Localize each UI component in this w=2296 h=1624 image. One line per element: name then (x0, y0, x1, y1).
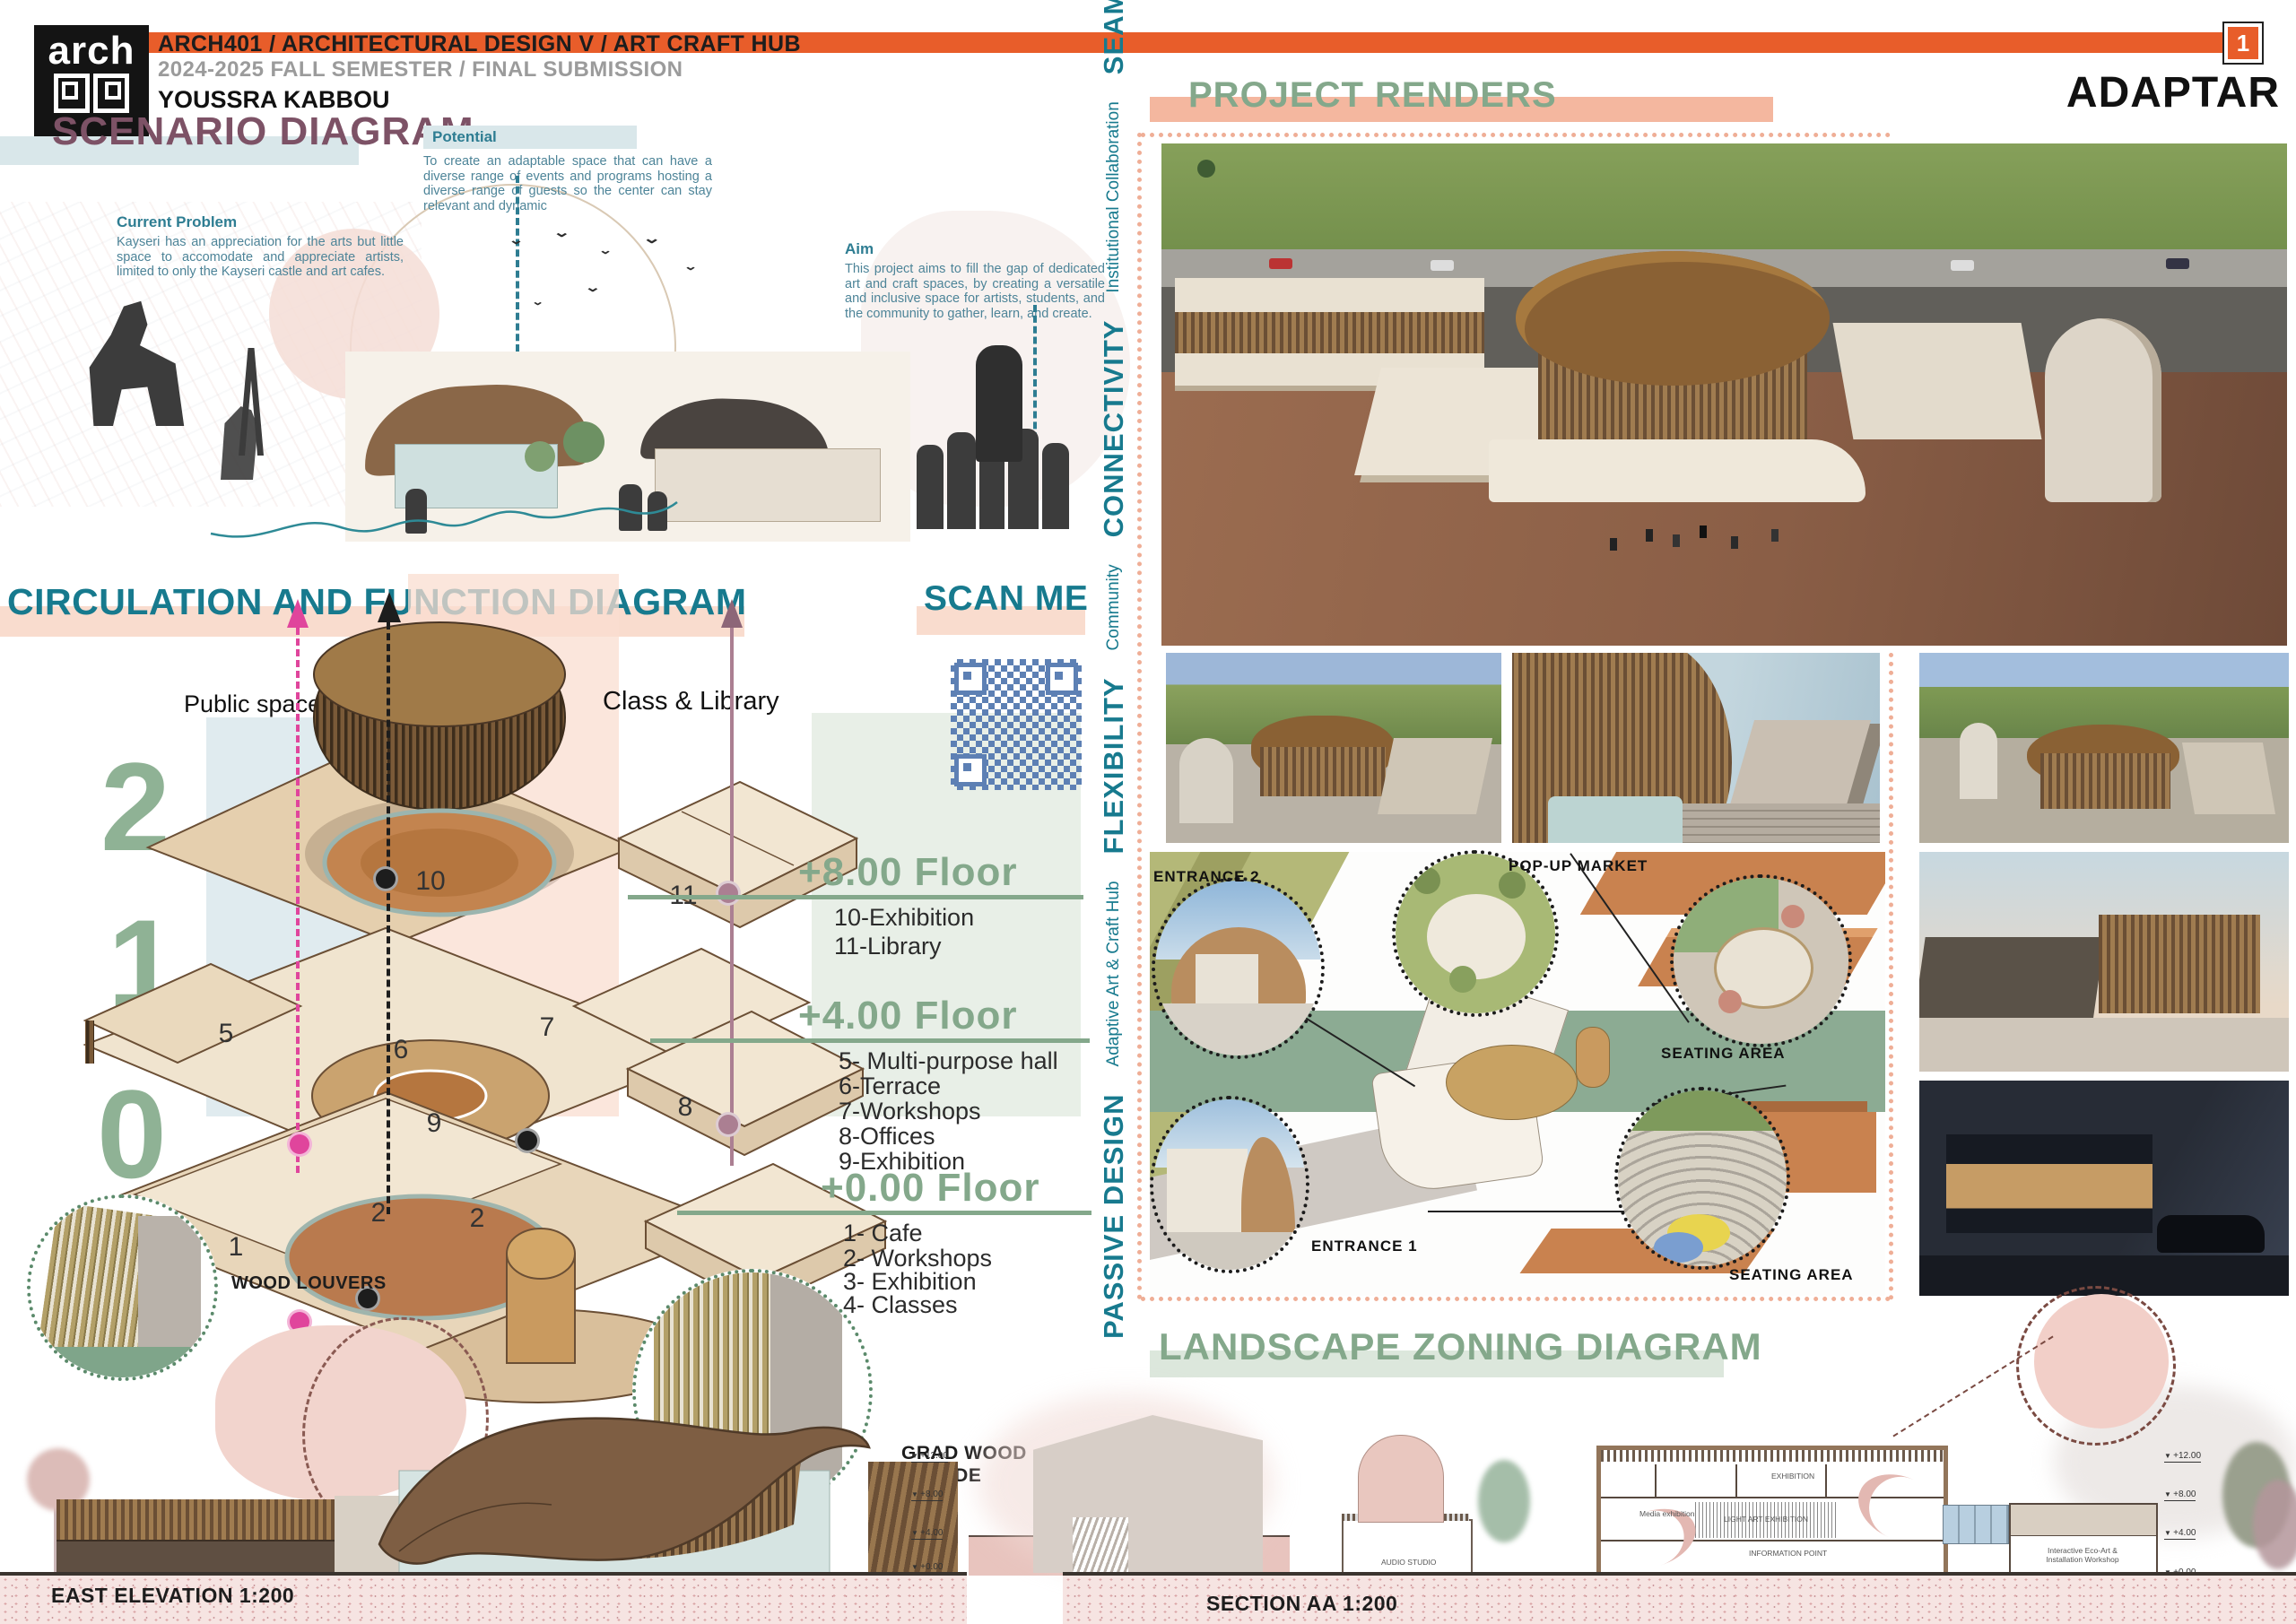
scanme-label: SCAN ME (924, 579, 1088, 619)
floor-item: 4- Classes (843, 1291, 958, 1319)
hero-tower-dome (2045, 318, 2161, 502)
qr-code (951, 659, 1082, 790)
axon-number-5: 5 (219, 1019, 234, 1048)
room-label-exhibition: EXHIBITION (1771, 1472, 1814, 1481)
floor-name-0: +0.00 Floor (821, 1166, 1040, 1211)
thumb5-lit-facade (1946, 1134, 2152, 1233)
value-label: Community (1104, 564, 1124, 650)
hero-white-volume2 (1833, 323, 2042, 439)
axon-number-7: 7 (540, 1012, 555, 1042)
arrow-line-public (296, 628, 300, 1173)
node-class (716, 881, 741, 906)
arrow-head-class-icon (721, 599, 743, 628)
render-thumb-1 (1166, 653, 1501, 843)
floor-name-8: +8.00 Floor (798, 850, 1018, 895)
room-label-info: INFORMATION POINT (1749, 1550, 1827, 1559)
render-thumb-4 (1919, 852, 2289, 1072)
silhouette-statue (976, 345, 1022, 462)
value-label: Institutional Collaboration (1104, 101, 1124, 292)
elevation-fin-wall (868, 1462, 958, 1574)
value-emph: FLEXIBILITY (1098, 677, 1130, 854)
section-dashed-ring (2016, 1286, 2176, 1446)
axon-number-10: 10 (415, 866, 445, 896)
east-elevation-label: EAST ELEVATION 1:200 (51, 1584, 294, 1608)
floor-item: 6-Terrace (839, 1073, 941, 1100)
floor-name-4: +4.00 Floor (798, 994, 1018, 1038)
value-emph: SEAMLESS (1098, 0, 1130, 74)
thumb1-dome (1179, 738, 1233, 823)
level-marker: +4.00 (2164, 1528, 2196, 1540)
value-label: Adaptive Art & Craft Hub (1104, 881, 1124, 1066)
section-glass-link (1943, 1505, 2009, 1544)
axon-number-2b: 2 (470, 1203, 485, 1233)
floor-line-4 (650, 1038, 1090, 1043)
frame-dotted-right (1889, 653, 1893, 1300)
level-marker: +8.00 (2164, 1489, 2196, 1501)
label-seating-area2: SEATING AREA (1729, 1266, 1854, 1284)
callout-entrance2 (1152, 877, 1325, 1059)
page-number: 1 (2228, 27, 2258, 59)
level-marker: +8.00 (911, 1489, 943, 1501)
level-marker: +12.00 (2164, 1451, 2201, 1463)
floor-item: 8-Offices (839, 1123, 935, 1151)
section-tree (2253, 1480, 2296, 1569)
thumb2-folded-walls (1727, 720, 1871, 814)
floor-item: 5- Multi-purpose hall (839, 1047, 1058, 1075)
node-public (287, 1132, 312, 1157)
axon-number-9: 9 (427, 1108, 442, 1138)
render-thumb-5 (1919, 1081, 2289, 1296)
arrow-head-public-icon (287, 599, 309, 628)
arrow-head-main-icon (378, 592, 401, 622)
floor-line-8 (628, 895, 1083, 899)
node-class (716, 1112, 741, 1137)
render-thumb-2 (1512, 653, 1880, 843)
section-dome (1358, 1435, 1444, 1523)
axon-number-8: 8 (678, 1092, 693, 1122)
landscape-title: LANDSCAPE ZONING DIAGRAM (1159, 1325, 1762, 1368)
section-house-door (1073, 1517, 1128, 1572)
label-entrance2: ENTRANCE 2 (1153, 868, 1260, 886)
plan-arrow (1428, 1211, 1625, 1212)
values-strip: PASSIVE DESIGN Adaptive Art & Craft Hub … (1087, 133, 1141, 1339)
arrow-line-main (387, 622, 390, 1214)
hero-podium (1489, 439, 1865, 502)
floor-item: 11-Library (834, 933, 942, 960)
value-emph: PASSIVE DESIGN (1098, 1093, 1130, 1339)
callout-entrance1 (1150, 1096, 1309, 1273)
elevation-louver-band (57, 1499, 335, 1540)
thumb2-steps (1674, 803, 1880, 843)
room-label-media: Media exhibition (1639, 1510, 1694, 1519)
render-thumb-3 (1919, 653, 2289, 843)
level-marker: +4.00 (911, 1528, 943, 1540)
value-emph: CONNECTIVITY (1098, 320, 1130, 538)
plan-hub-cylinder (1576, 1027, 1610, 1088)
detail-circle-wood-louvers (27, 1194, 218, 1381)
label-entrance1: ENTRANCE 1 (1311, 1238, 1418, 1255)
section-annex (2009, 1503, 2158, 1577)
floor-line-0 (677, 1211, 1091, 1215)
floor-item: 1- Cafe (843, 1220, 923, 1247)
hero-people (1646, 529, 1653, 542)
frame-dotted-top (1141, 133, 1891, 137)
section-tree (1478, 1460, 1530, 1542)
hero-trees (1197, 160, 1215, 178)
thumb2-glass (1548, 796, 1683, 843)
elevation-swoosh-building (372, 1408, 874, 1575)
section-audio-studio (1342, 1519, 1473, 1576)
hero-cars (1269, 258, 1292, 269)
elevation-base (57, 1540, 335, 1576)
thumb5-car (2157, 1215, 2265, 1253)
floor-item: 10-Exhibition (834, 904, 974, 932)
page-number-box: 1 (2222, 22, 2264, 65)
plan-hub-oval-roof (1446, 1045, 1578, 1120)
project-name: ADAPTAR (2066, 68, 2280, 117)
section-label: SECTION AA 1:200 (1206, 1592, 1397, 1616)
axon-number-2a: 2 (371, 1198, 387, 1228)
callout-seating-area1 (1670, 874, 1852, 1047)
floor-item: 7-Workshops (839, 1098, 981, 1125)
presentation-board: arch ARCH401 / ARCHITECTURAL DESIGN V / … (0, 0, 2296, 1624)
hero-render (1161, 143, 2287, 646)
label-seating-area1: SEATING AREA (1661, 1045, 1786, 1063)
renders-title: PROJECT RENDERS (1188, 75, 1557, 116)
node-main (373, 866, 398, 891)
wood-louvers-label: WOOD LOUVERS (231, 1273, 387, 1294)
axon-number-6: 6 (394, 1035, 409, 1064)
frame-dotted-left (1137, 133, 1142, 1300)
label-popup-market: POP-UP MARKET (1509, 857, 1648, 875)
level-marker: +12.00 (911, 1451, 948, 1463)
room-label-eco: Interactive Eco-Art & Installation Works… (2029, 1547, 2136, 1564)
callout-seating-area2 (1614, 1087, 1790, 1270)
hero-drum-roof (1516, 251, 1830, 386)
frame-dotted-bottom (1141, 1297, 1891, 1301)
room-label-light: LIGHT ART EXHIBITION (1724, 1515, 1808, 1524)
room-label-audio: AUDIO STUDIO (1381, 1559, 1436, 1568)
axon-number-1: 1 (229, 1232, 244, 1262)
node-main (515, 1128, 540, 1153)
